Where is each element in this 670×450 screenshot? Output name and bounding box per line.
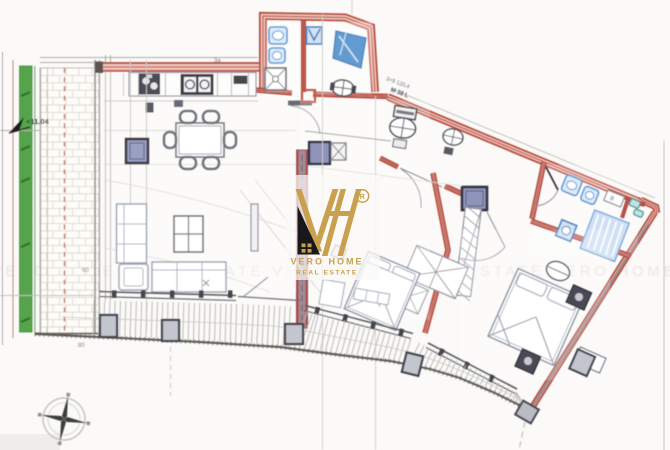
- svg-text:3a: 3a: [214, 59, 221, 65]
- svg-text:R: R: [360, 194, 365, 201]
- svg-text:+11.04: +11.04: [26, 117, 50, 126]
- svg-text:80: 80: [78, 343, 85, 349]
- svg-text:60: 60: [82, 268, 89, 274]
- svg-text:REAL ESTATE: REAL ESTATE: [296, 270, 358, 277]
- svg-text:VERO HOME: VERO HOME: [290, 257, 363, 267]
